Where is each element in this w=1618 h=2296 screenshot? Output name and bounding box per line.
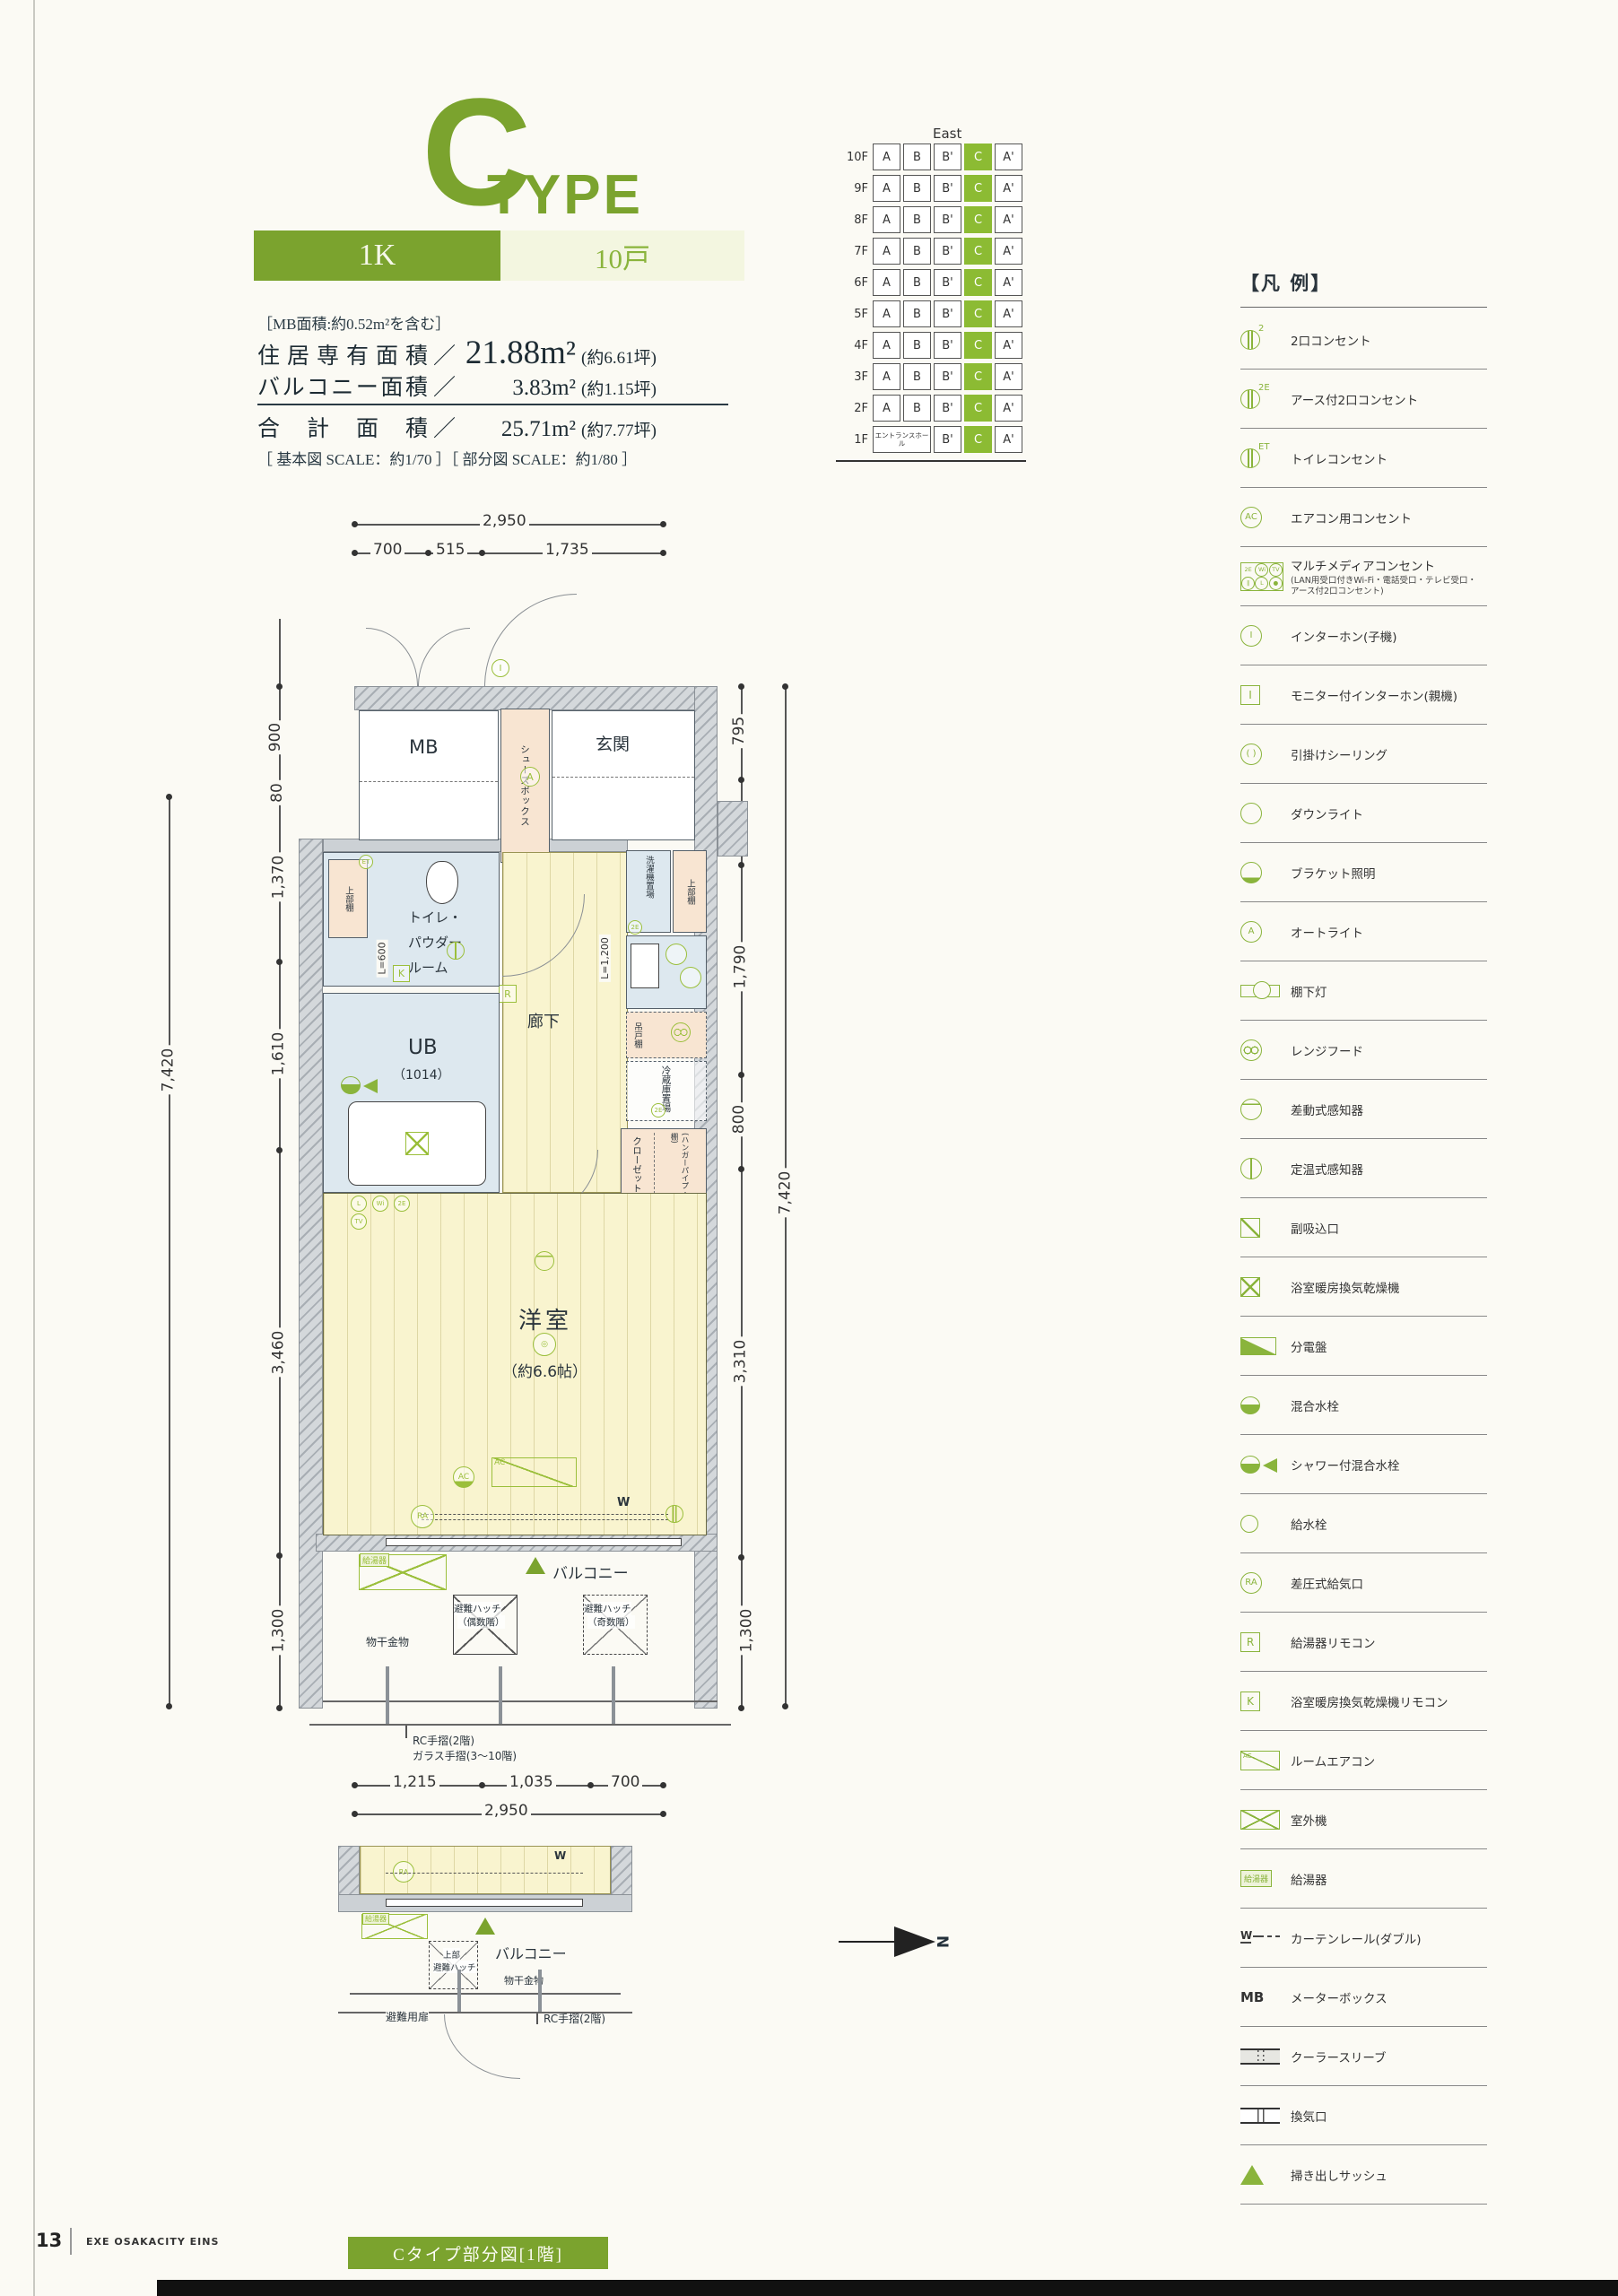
dim-right: 1,300 bbox=[737, 1606, 755, 1656]
legend-label: 副吸込口 bbox=[1291, 1219, 1339, 1237]
circle-icon: A bbox=[1240, 921, 1291, 943]
rail-post bbox=[499, 1666, 502, 1724]
mb-area-note: ［MB面積:約0.52m²を含む］ bbox=[257, 311, 450, 334]
vent-icon bbox=[1240, 2108, 1291, 2124]
pp-rail-post bbox=[538, 1970, 542, 2012]
grid-cell: B' bbox=[934, 426, 961, 453]
grid-cell: A bbox=[873, 206, 900, 233]
grid-cell: A' bbox=[995, 175, 1022, 202]
fridge-outlet-icon: 2E bbox=[651, 1103, 665, 1118]
legend-item: クーラースリーブ bbox=[1240, 2027, 1487, 2086]
legend-item: 差動式感知器 bbox=[1240, 1080, 1487, 1139]
hanging-shelf-label: 吊戸棚 bbox=[631, 1022, 643, 1048]
rail-icon: W bbox=[1240, 1929, 1291, 1947]
ub-size-label: （1014） bbox=[393, 1065, 450, 1083]
dim-right: 795 bbox=[730, 714, 748, 748]
balcony-label: バルコニー bbox=[552, 1561, 629, 1583]
legend-item: ダウンライト bbox=[1240, 784, 1487, 843]
curtain-rail-line bbox=[422, 1514, 668, 1515]
grid-floor-label: 9F bbox=[836, 182, 873, 196]
grid-cell: A' bbox=[995, 238, 1022, 265]
grid-row: 7FABB'CA' bbox=[836, 238, 1025, 265]
mixer-icon bbox=[1240, 1396, 1291, 1414]
room-size-label: （約6.6帖） bbox=[502, 1359, 587, 1381]
area-tsubo: (約6.61坪) bbox=[576, 344, 657, 369]
type-word: TYPE bbox=[487, 163, 643, 227]
diag-sq-icon bbox=[1240, 1218, 1291, 1238]
kitchen-grill bbox=[631, 944, 659, 988]
legend-item: 混合水栓 bbox=[1240, 1376, 1487, 1435]
upper-shelf-label: 上部棚 bbox=[342, 886, 354, 912]
hall-label: 廊下 bbox=[527, 1009, 560, 1032]
hatch-even-label-1: 避難ハッチ bbox=[454, 1602, 501, 1615]
area-divider bbox=[257, 404, 728, 405]
burner-icon bbox=[665, 944, 687, 965]
dim-top-total: 2,950 bbox=[480, 512, 529, 530]
legend-item: ACルームエアコン bbox=[1240, 1731, 1487, 1790]
pp-rc-leader bbox=[536, 2013, 538, 2024]
dim-top-part: 515 bbox=[433, 541, 467, 559]
grid-direction-label: East bbox=[933, 126, 961, 142]
grid-row: 10FABB'CA' bbox=[836, 143, 1025, 170]
icon-superscript: 2E bbox=[1258, 383, 1270, 393]
grid-cell: B' bbox=[934, 332, 961, 359]
grid-cell: A' bbox=[995, 395, 1022, 422]
grid-cell: A' bbox=[995, 206, 1022, 233]
wall-left bbox=[299, 839, 323, 1709]
wall-right-notch bbox=[718, 801, 748, 857]
legend-item: 2Eアース付2口コンセント bbox=[1240, 370, 1487, 429]
legend-label: エアコン用コンセント bbox=[1291, 509, 1412, 526]
dim-bottom-part: 1,215 bbox=[390, 1773, 439, 1791]
grid-cell: B' bbox=[934, 206, 961, 233]
page-number: 13 bbox=[36, 2230, 62, 2251]
dim-left-total: 7,420 bbox=[159, 1046, 177, 1095]
rail-post bbox=[612, 1666, 615, 1724]
tick bbox=[660, 521, 666, 527]
tick bbox=[425, 550, 431, 556]
pp-curtain-line bbox=[386, 1873, 583, 1874]
area-tsubo: (約7.77坪) bbox=[576, 417, 657, 441]
legend-label: レンジフード bbox=[1291, 1041, 1363, 1059]
tick bbox=[276, 959, 283, 965]
hanging-shelf: 吊戸棚 bbox=[626, 1012, 707, 1058]
grid-cell: C bbox=[964, 426, 992, 453]
rac-icon: AC bbox=[1240, 1751, 1291, 1770]
tick bbox=[660, 550, 666, 556]
tap-icon bbox=[1240, 1515, 1291, 1533]
tick bbox=[587, 1782, 594, 1788]
washer-label: 洗濯機置場 bbox=[642, 856, 655, 927]
ceiling-hook-icon: ◎ bbox=[533, 1333, 556, 1356]
legend-label: モニター付インターホン(親機) bbox=[1291, 686, 1457, 704]
pp-heater-tag: 給湯器 bbox=[362, 1913, 389, 1925]
outlet-dot: L bbox=[351, 1196, 367, 1212]
ac-outlet-icon: AC bbox=[453, 1466, 474, 1488]
grid-cell: C bbox=[964, 206, 992, 233]
legend-label: オートライト bbox=[1291, 923, 1363, 941]
ub-label: UB bbox=[408, 1036, 438, 1059]
hatch-odd-label-2: （奇数階） bbox=[587, 1615, 635, 1629]
pp-rail-post bbox=[457, 1970, 461, 2012]
grid-cell: B' bbox=[934, 395, 961, 422]
tick bbox=[738, 777, 744, 783]
pp-sweep-sash-icon bbox=[475, 1918, 495, 1935]
grid-cell: B' bbox=[934, 238, 961, 265]
circle-icon bbox=[1240, 803, 1291, 824]
multimedia-part: L bbox=[1255, 577, 1268, 590]
fridge-space: 冷蔵庫置場 bbox=[626, 1061, 707, 1121]
outlet-icon: 2E bbox=[1240, 389, 1291, 409]
grid-row: 2FABB'CA' bbox=[836, 395, 1025, 422]
tri-icon bbox=[1240, 2165, 1291, 2185]
legend-label: 室外機 bbox=[1291, 1811, 1327, 1829]
legend-item: ( )引掛けシーリング bbox=[1240, 725, 1487, 784]
dim-left: 1,300 bbox=[269, 1606, 287, 1656]
dim-bottom-total: 2,950 bbox=[482, 1802, 531, 1820]
dim-left: 1,610 bbox=[269, 1030, 287, 1079]
kitchen-l1200: L=1,200 bbox=[599, 935, 611, 982]
legend-label: 掃き出しサッシュ bbox=[1291, 2166, 1387, 2184]
layout-badge: 1K bbox=[254, 230, 500, 281]
tick bbox=[479, 1782, 485, 1788]
grid-cell: A' bbox=[995, 332, 1022, 359]
tick bbox=[166, 794, 172, 800]
legend-item: ブラケット照明 bbox=[1240, 843, 1487, 902]
grid-floor-label: 4F bbox=[836, 339, 873, 352]
legend-item: 掃き出しサッシュ bbox=[1240, 2145, 1487, 2205]
grid-cell: C bbox=[964, 332, 992, 359]
heater-remote-icon: R bbox=[499, 985, 517, 1003]
circle-icon: I bbox=[1240, 625, 1291, 647]
tick bbox=[352, 550, 358, 556]
legend-label: ルームエアコン bbox=[1291, 1752, 1375, 1770]
legend-label: 浴室暖房換気乾燥機リモコン bbox=[1291, 1692, 1448, 1710]
tick bbox=[738, 1705, 744, 1711]
room-mb: MB bbox=[359, 710, 499, 840]
tick bbox=[660, 1811, 666, 1817]
outlet-tv: TV bbox=[351, 1213, 367, 1230]
legend-label: 換気口 bbox=[1291, 2107, 1327, 2125]
grid-cell: C bbox=[964, 143, 992, 170]
rc-note: RC手摺(2階) bbox=[413, 1733, 474, 1748]
burner-icon bbox=[680, 967, 701, 988]
multimedia-part: ‖ bbox=[1241, 577, 1255, 590]
bath-remote-icon: K bbox=[393, 965, 410, 982]
legend-item: MBメーターボックス bbox=[1240, 1968, 1487, 2027]
shelf-light-icon bbox=[1240, 985, 1291, 997]
brochure-page: C TYPE 1K 10戸 ［MB面積:約0.52m²を含む］ 住居専有面積 ／… bbox=[0, 0, 1618, 2296]
legend-label: クーラースリーブ bbox=[1291, 2048, 1387, 2066]
grid-row: 5FABB'CA' bbox=[836, 300, 1025, 327]
footer-brand: EXE OSAKACITY EINS bbox=[86, 2236, 219, 2248]
outlet-wi: Wi bbox=[372, 1196, 388, 1212]
legend-label: ダウンライト bbox=[1291, 804, 1363, 822]
tick bbox=[276, 1552, 283, 1559]
grid-row: 8FABB'CA' bbox=[836, 206, 1025, 233]
genkan-label: 玄関 bbox=[596, 731, 694, 755]
legend-item: 給湯器給湯器 bbox=[1240, 1849, 1487, 1909]
grid-row: 6FABB'CA' bbox=[836, 269, 1025, 296]
grid-floor-label: 1F bbox=[836, 433, 873, 447]
hatch-even-label-2: （偶数階） bbox=[457, 1615, 505, 1629]
tick bbox=[352, 1782, 358, 1788]
area-tsubo: (約1.15坪) bbox=[576, 376, 657, 400]
legend-label: 差動式感知器 bbox=[1291, 1100, 1363, 1118]
genkan-dashed-line bbox=[552, 777, 694, 778]
legend-item: ACエアコン用コンセント bbox=[1240, 488, 1487, 547]
wall-top bbox=[354, 686, 718, 710]
slash: ／ bbox=[428, 370, 461, 402]
pp-w-label: W bbox=[554, 1849, 566, 1862]
pp-escape-door-label: 避難用扉 bbox=[386, 2009, 429, 2024]
x-rect-icon bbox=[1240, 1810, 1291, 1830]
area-label: 住居専有面積 bbox=[257, 338, 428, 370]
bath-dryer-icon bbox=[405, 1132, 429, 1155]
shower-mixer-icon bbox=[341, 1076, 361, 1094]
grid-cell: A bbox=[873, 269, 900, 296]
multimedia-outlet-icon: L Wi 2E TV bbox=[348, 1195, 413, 1231]
unit-count-badge: 10戸 bbox=[500, 230, 744, 281]
left-scan-line bbox=[33, 0, 35, 2296]
dim-line-left-total bbox=[169, 796, 170, 1707]
legend-item: Wカーテンレール(ダブル) bbox=[1240, 1909, 1487, 1968]
grid-cell: A bbox=[873, 332, 900, 359]
fixed-icon bbox=[1240, 1158, 1291, 1179]
grid-cell: A bbox=[873, 363, 900, 390]
hood-icon bbox=[1240, 1039, 1291, 1061]
grid-cell: B bbox=[903, 238, 931, 265]
legend-item: Iモニター付インターホン(親機) bbox=[1240, 665, 1487, 725]
grid-cell: B bbox=[903, 269, 931, 296]
dim-right: 1,790 bbox=[731, 943, 749, 992]
legend-item: Aオートライト bbox=[1240, 902, 1487, 961]
circle-icon: RA bbox=[1240, 1572, 1291, 1594]
balcony-rail bbox=[323, 1700, 718, 1702]
outlet-icon: 2 bbox=[1240, 330, 1291, 350]
rail-post bbox=[386, 1666, 389, 1724]
toilet-outlet-icon: ET bbox=[359, 855, 373, 869]
wall-mid bbox=[323, 839, 628, 852]
grid-cell: B bbox=[903, 395, 931, 422]
legend-item: 換気口 bbox=[1240, 2086, 1487, 2145]
ra-vent-icon: RA bbox=[411, 1505, 434, 1528]
tick bbox=[660, 1782, 666, 1788]
sleeve-icon bbox=[1240, 2048, 1291, 2065]
glass-note: ガラス手摺(3〜10階) bbox=[413, 1748, 517, 1763]
legend-label: 分電盤 bbox=[1291, 1337, 1327, 1355]
room-label: 洋室 bbox=[518, 1302, 572, 1335]
text-icon: MB bbox=[1240, 1989, 1291, 2005]
grid-floor-label: 3F bbox=[836, 370, 873, 384]
legend-label: 給湯器 bbox=[1291, 1870, 1327, 1888]
sweep-sash-icon bbox=[526, 1557, 545, 1574]
tick bbox=[782, 1703, 788, 1709]
washer-outlet-icon: 2E bbox=[628, 920, 642, 935]
legend-item: 給水栓 bbox=[1240, 1494, 1487, 1553]
grid-cell: C bbox=[964, 395, 992, 422]
legend-title: 【凡 例】 bbox=[1240, 269, 1487, 308]
tick bbox=[479, 550, 485, 556]
icon-superscript: ET bbox=[1258, 442, 1269, 452]
legend-item: ETトイレコンセント bbox=[1240, 429, 1487, 488]
legend-item: 浴室暖房換気乾燥機 bbox=[1240, 1257, 1487, 1317]
grid-cell: A bbox=[873, 143, 900, 170]
area-value: 21.88m² bbox=[461, 334, 576, 372]
bracket-icon bbox=[1240, 862, 1291, 883]
multimedia-part: TV bbox=[1269, 563, 1283, 577]
area-value: 25.71m² bbox=[461, 417, 576, 442]
grid-row: 9FABB'CA' bbox=[836, 175, 1025, 202]
door-arc-mb-right bbox=[418, 628, 470, 686]
grid-cell: C bbox=[964, 300, 992, 327]
room-genkan: 玄関 bbox=[552, 710, 695, 840]
pp-rail bbox=[350, 1993, 621, 1995]
dim-right: 800 bbox=[730, 1102, 748, 1136]
area-label: バルコニー面積 bbox=[257, 370, 428, 402]
hatch-odd-label-1: 避難ハッチ bbox=[584, 1602, 631, 1615]
water-heater-unit: 給湯器 bbox=[359, 1554, 447, 1590]
legend-item: 2EWiTV‖L●マルチメディアコンセント(LAN用受口付きWi-Fi・電話受口… bbox=[1240, 547, 1487, 606]
partial-plan-caption: Cタイプ部分図[1階] bbox=[348, 2237, 608, 2269]
dim-bottom-part: 1,035 bbox=[507, 1773, 556, 1791]
legend-item: 棚下灯 bbox=[1240, 961, 1487, 1021]
pp-upper-hatch-label-2: 避難ハッチ bbox=[433, 1961, 476, 1973]
grid-cell: C bbox=[964, 175, 992, 202]
tick bbox=[276, 683, 283, 690]
tick bbox=[352, 1811, 358, 1817]
grid-cell: B' bbox=[934, 300, 961, 327]
legend-label: 差圧式給気口 bbox=[1291, 1574, 1363, 1592]
ac-box-label: AC bbox=[494, 1458, 505, 1467]
legend-sublabel: (LAN用受口付きWi-Fi・電話受口・テレビ受口・アース付2口コンセント) bbox=[1291, 576, 1483, 597]
grid-floor-label: 7F bbox=[836, 245, 873, 258]
ub-tub bbox=[348, 1101, 486, 1186]
tick bbox=[738, 862, 744, 868]
legend-label: 2口コンセント bbox=[1291, 331, 1371, 349]
grid-baseline bbox=[836, 460, 1026, 462]
grid-cell: B bbox=[903, 206, 931, 233]
legend-label: トイレコンセント bbox=[1291, 449, 1387, 467]
dist-icon bbox=[1240, 1337, 1291, 1355]
grid-cell: B bbox=[903, 363, 931, 390]
pp-ra-icon: RA bbox=[393, 1861, 414, 1883]
circle-icon: AC bbox=[1240, 507, 1291, 528]
outlet-2e: 2E bbox=[394, 1196, 410, 1212]
pp-window bbox=[386, 1899, 583, 1907]
fixed-detector-icon bbox=[447, 942, 465, 960]
grid-cell: A' bbox=[995, 300, 1022, 327]
curtain-rail-line2 bbox=[422, 1519, 668, 1520]
legend-item: Iインターホン(子機) bbox=[1240, 606, 1487, 665]
legend-item: レンジフード bbox=[1240, 1021, 1487, 1080]
legend-label: 浴室暖房換気乾燥機 bbox=[1291, 1278, 1400, 1296]
upper-shelf-right-label: 上部棚 bbox=[683, 879, 696, 905]
legend-item: 22口コンセント bbox=[1240, 310, 1487, 370]
grid-floor-label: 6F bbox=[836, 276, 873, 290]
x-sq-icon bbox=[1240, 1277, 1291, 1297]
tick bbox=[738, 683, 744, 690]
multimedia-part: 2E bbox=[1242, 564, 1254, 576]
dim-bottom-part: 700 bbox=[608, 1773, 642, 1791]
tick bbox=[738, 1072, 744, 1078]
rail-leader bbox=[405, 1726, 407, 1738]
legend-item: シャワー付混合水栓 bbox=[1240, 1435, 1487, 1494]
grid-cell: A bbox=[873, 175, 900, 202]
legend-label: 給水栓 bbox=[1291, 1515, 1327, 1533]
toilet-fixture bbox=[426, 861, 458, 904]
room-ac-unit: AC bbox=[491, 1457, 577, 1487]
grid-cell: B bbox=[903, 300, 931, 327]
legend-label: 棚下灯 bbox=[1291, 982, 1327, 1000]
heater-tag: 給湯器 bbox=[360, 1553, 389, 1567]
circle-icon: ( ) bbox=[1240, 744, 1291, 765]
legend-label: シャワー付混合水栓 bbox=[1291, 1456, 1400, 1474]
legend-label: 引掛けシーリング bbox=[1291, 745, 1387, 763]
grid-cell: B bbox=[903, 143, 931, 170]
pp-rc-note: RC手摺(2階) bbox=[544, 2011, 605, 2026]
toilet-label-1: トイレ・ bbox=[408, 908, 462, 926]
area-row-balcony: バルコニー面積 ／ 3.83m² (約1.15坪) bbox=[257, 370, 657, 402]
grid-cell: C bbox=[964, 269, 992, 296]
multimedia-part: Wi bbox=[1255, 563, 1268, 577]
room-outlet-icon bbox=[665, 1505, 683, 1523]
legend-label: 混合水栓 bbox=[1291, 1396, 1339, 1414]
legend-item: 副吸込口 bbox=[1240, 1198, 1487, 1257]
legend-item: 分電盤 bbox=[1240, 1317, 1487, 1376]
legend-label: 定温式感知器 bbox=[1291, 1160, 1363, 1178]
pp-balcony-label: バルコニー bbox=[495, 1942, 567, 1963]
position-grid-rows: 10FABB'CA'9FABB'CA'8FABB'CA'7FABB'CA'6FA… bbox=[836, 143, 1025, 457]
square-icon: K bbox=[1240, 1692, 1291, 1711]
diff-icon bbox=[1240, 1099, 1291, 1120]
legend-label: カーテンレール(ダブル) bbox=[1291, 1929, 1422, 1947]
grid-cell: C bbox=[964, 363, 992, 390]
grid-cell: A' bbox=[995, 269, 1022, 296]
grid-cell: A bbox=[873, 300, 900, 327]
grid-floor-label: 8F bbox=[836, 213, 873, 227]
north-label: N bbox=[933, 1935, 951, 1948]
intercom-child-icon: I bbox=[491, 659, 509, 677]
compass-arrow bbox=[894, 1926, 935, 1957]
dim-left: 1,370 bbox=[269, 853, 287, 902]
legend-label: アース付2口コンセント bbox=[1291, 390, 1418, 408]
dim-right: 3,310 bbox=[731, 1337, 749, 1387]
area-value: 3.83m² bbox=[461, 376, 576, 401]
range-hood-icon bbox=[671, 1022, 691, 1042]
toilet-upper-shelf: 上部棚 bbox=[328, 859, 368, 938]
pp-upper-hatch-label-1: 上部 bbox=[443, 1948, 460, 1961]
downlight-icon bbox=[535, 1251, 554, 1271]
grid-cell: B' bbox=[934, 269, 961, 296]
dim-right-total: 7,420 bbox=[776, 1169, 794, 1218]
slash: ／ bbox=[428, 411, 461, 443]
dim-left: 80 bbox=[268, 780, 286, 805]
footer-divider bbox=[70, 2228, 72, 2255]
grid-cell: B' bbox=[934, 143, 961, 170]
toilet-label-3: ルーム bbox=[408, 958, 448, 977]
grid-floor-label: 10F bbox=[836, 151, 873, 164]
dim-left: 3,460 bbox=[269, 1328, 287, 1378]
grid-cell: A' bbox=[995, 143, 1022, 170]
tick bbox=[166, 1703, 172, 1709]
legend-label: マルチメディアコンセント bbox=[1291, 556, 1483, 574]
grid-floor-label: 2F bbox=[836, 402, 873, 415]
outlet-icon: ET bbox=[1240, 448, 1291, 468]
grid-cell: A' bbox=[995, 363, 1022, 390]
dim-top-part: 700 bbox=[370, 541, 404, 559]
slash: ／ bbox=[428, 338, 461, 370]
